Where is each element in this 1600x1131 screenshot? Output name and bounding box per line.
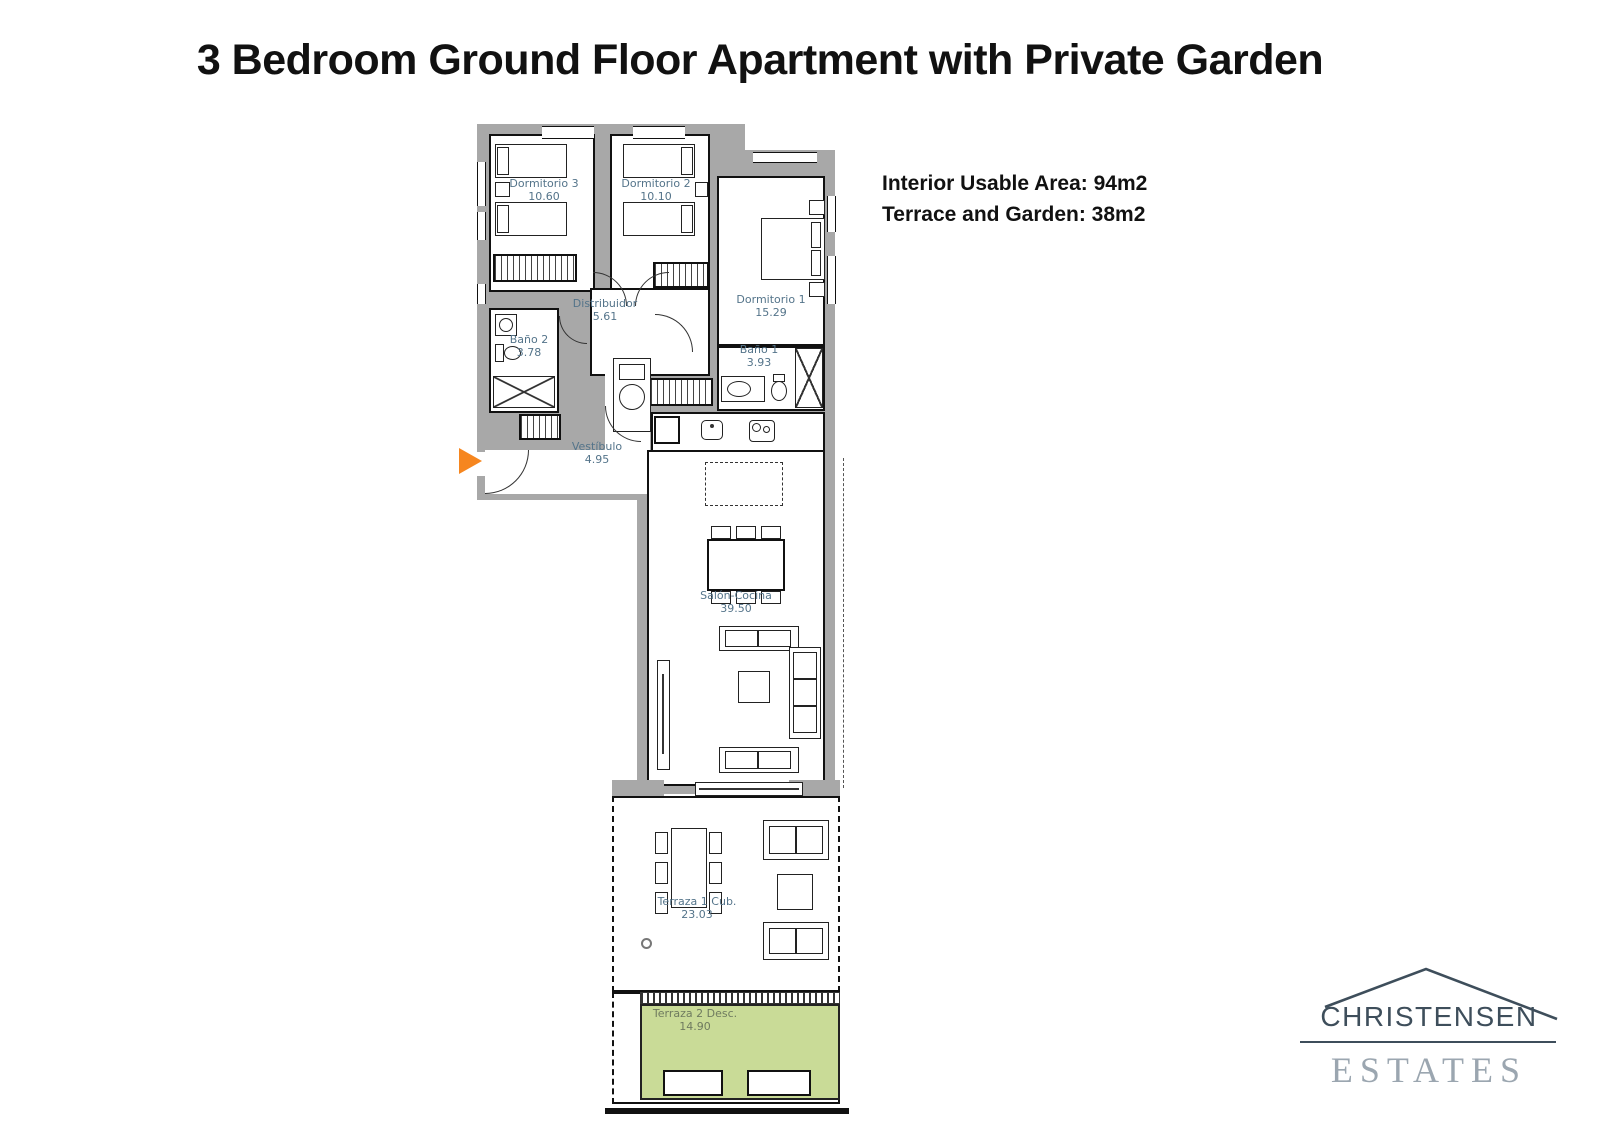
terrace-chair-r2: [709, 862, 722, 884]
terrace-side-table: [777, 874, 813, 910]
terrace-area-text: Terrace and Garden: 38m2: [882, 199, 1147, 230]
chair-top-2: [736, 526, 756, 539]
pillow-d3-b: [497, 205, 509, 233]
toilet-tank-banio2: [495, 344, 504, 362]
room-label-salon-cocina: Salón-Cocina 39.50: [700, 590, 772, 615]
sink-bowl-banio1: [727, 381, 751, 397]
terrace-chair-l2: [655, 862, 668, 884]
nightstand-d2: [695, 182, 708, 197]
window-right-2: [827, 256, 836, 304]
sun-lounger-2: [747, 1070, 811, 1096]
room-name: Salón-Cocina: [700, 590, 772, 603]
terrace-sofa2-cushion-2: [796, 928, 823, 954]
interior-area-text: Interior Usable Area: 94m2: [882, 168, 1147, 199]
room-area: 10.60: [509, 191, 578, 204]
sofa-top-cushion-1: [725, 630, 758, 647]
sofa-right-cushion-1: [793, 652, 817, 679]
chair-top-1: [711, 526, 731, 539]
tv-line: [662, 674, 664, 754]
chair-top-3: [761, 526, 781, 539]
window-dormitorio-1: [753, 152, 817, 163]
window-dormitorio-2: [633, 126, 685, 139]
wardrobe-d3: [493, 254, 577, 282]
nightstand-d1-a: [809, 200, 825, 215]
coffee-table: [738, 671, 770, 703]
room-area: 3.78: [510, 347, 548, 360]
logo-divider: [1300, 1041, 1556, 1043]
terrace-sofa1-cushion-1: [769, 826, 796, 854]
room-area: 15.29: [736, 307, 805, 320]
wardrobe-vestibule: [519, 414, 561, 440]
room-area: 23.03: [658, 909, 737, 922]
sink-tap-dot: [710, 424, 714, 428]
room-label-terraza-1: Terraza 1 Cub. 23.03: [658, 896, 737, 921]
room-area: 5.61: [573, 311, 637, 324]
logo-type: ESTATES: [1298, 1049, 1560, 1091]
laundry-shelf: [619, 364, 645, 380]
hob-burner-1: [752, 423, 761, 432]
room-name: Baño 2: [510, 334, 548, 347]
window-right-1: [827, 196, 836, 232]
room-name: Vestíbulo: [572, 441, 622, 454]
kitchen-sink-icon: [701, 420, 723, 440]
room-label-dormitorio-2: Dormitorio 2 10.10: [621, 178, 690, 203]
area-info: Interior Usable Area: 94m2 Terrace and G…: [882, 168, 1147, 230]
garden-edge-hatch: [640, 992, 840, 1004]
room-area: 39.50: [700, 603, 772, 616]
sink-bowl-banio2: [499, 318, 513, 332]
sofa-right-cushion-3: [793, 706, 817, 733]
room-label-vestibulo: Vestíbulo 4.95: [572, 441, 622, 466]
pillow-d2-b: [681, 205, 693, 233]
room-label-banio-2: Baño 2 3.78: [510, 334, 548, 359]
room-name: Dormitorio 1: [736, 294, 805, 307]
window-left-2: [477, 212, 486, 240]
dining-table: [707, 539, 785, 591]
section-line-right: [843, 458, 844, 788]
pillow-d1-b: [811, 250, 821, 276]
room-area: 10.10: [621, 191, 690, 204]
room-name: Distribuidor: [573, 298, 637, 311]
room-label-dormitorio-3: Dormitorio 3 10.60: [509, 178, 578, 203]
room-name: Baño 1: [740, 344, 778, 357]
nightstand-d1-b: [809, 282, 825, 297]
room-label-distribuidor: Distribuidor 5.61: [573, 298, 637, 323]
fridge-icon: [654, 416, 680, 444]
pillow-d3-a: [497, 147, 509, 175]
room-area: 4.95: [572, 454, 622, 467]
sofa-bottom-cushion-2: [758, 751, 791, 769]
logo-name: CHRISTENSEN: [1298, 1001, 1560, 1033]
nightstand-d3: [495, 182, 510, 197]
room-label-dormitorio-1: Dormitorio 1 15.29: [736, 294, 805, 319]
terrace-sofa2-cushion-1: [769, 928, 796, 954]
page-title: 3 Bedroom Ground Floor Apartment with Pr…: [70, 36, 1450, 85]
sofa-bottom-cushion-1: [725, 751, 758, 769]
window-left-3: [477, 284, 486, 304]
pillow-d1-a: [811, 222, 821, 248]
room-name: Dormitorio 3: [509, 178, 578, 191]
room-area: 14.90: [653, 1021, 737, 1034]
pillow-d2-a: [681, 147, 693, 175]
floor-plan: Dormitorio 3 10.60 Dormitorio 2 10.10 Do…: [455, 118, 855, 1123]
room-name: Terraza 2 Desc.: [653, 1008, 737, 1021]
entrance-arrow-icon: [459, 448, 482, 474]
sofa-top-cushion-2: [758, 630, 791, 647]
window-dormitorio-3: [542, 126, 594, 139]
terrace-chair-r1: [709, 832, 722, 854]
room-label-banio-1: Baño 1 3.93: [740, 344, 778, 369]
terrace-sofa1-cushion-2: [796, 826, 823, 854]
sun-lounger-1: [663, 1070, 723, 1096]
sofa-right-cushion-2: [793, 679, 817, 706]
agency-logo: CHRISTENSEN ESTATES: [1298, 953, 1560, 1103]
room-label-terraza-2: Terraza 2 Desc. 14.90: [653, 1008, 737, 1033]
window-left-1: [477, 162, 486, 206]
shower-banio2: [493, 376, 555, 408]
shower-banio1: [795, 348, 823, 408]
room-area: 3.93: [740, 357, 778, 370]
toilet-banio1: [771, 381, 787, 401]
terrace-light-dot: [641, 938, 652, 949]
room-name: Dormitorio 2: [621, 178, 690, 191]
slider-door-line: [699, 788, 799, 790]
room-name: Terraza 1 Cub.: [658, 896, 737, 909]
terrace-chair-l1: [655, 832, 668, 854]
kitchen-island: [705, 462, 783, 506]
boundary-wall-bottom: [605, 1108, 849, 1114]
hob-burner-2: [763, 426, 770, 433]
